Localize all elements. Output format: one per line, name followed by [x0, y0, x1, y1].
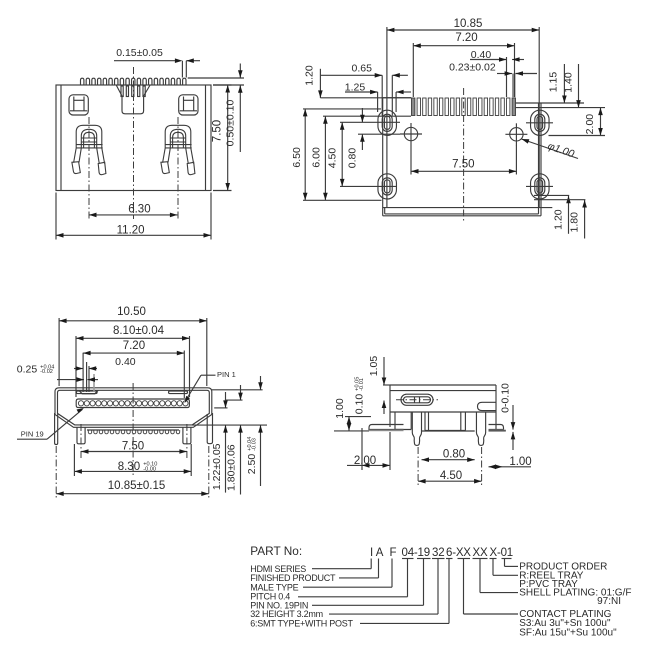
svg-text:1.15: 1.15: [548, 72, 560, 93]
svg-text:PIN 19: PIN 19: [21, 430, 44, 439]
svg-text:-0.02: -0.02: [40, 369, 53, 375]
svg-text:1.22±0.05: 1.22±0.05: [211, 443, 223, 490]
svg-text:7.50: 7.50: [122, 440, 144, 452]
svg-text:0.80: 0.80: [443, 449, 465, 461]
svg-text:10.85: 10.85: [454, 18, 483, 30]
svg-text:10.50: 10.50: [117, 306, 146, 318]
svg-text:7.20: 7.20: [455, 32, 477, 44]
svg-text:-0.01: -0.01: [359, 378, 365, 391]
svg-text:X-01: X-01: [490, 547, 514, 559]
svg-text:I: I: [370, 547, 373, 559]
svg-text:2.50: 2.50: [246, 454, 258, 475]
svg-text:SF:Au 15u"+Su 100u": SF:Au 15u"+Su 100u": [519, 627, 617, 638]
svg-text:0.50±0.10: 0.50±0.10: [225, 100, 237, 147]
svg-text:0-0.10: 0-0.10: [500, 383, 512, 413]
svg-text:2.00: 2.00: [584, 114, 596, 135]
svg-text:1.00: 1.00: [509, 456, 531, 468]
svg-text:0.65: 0.65: [351, 63, 372, 75]
svg-text:1.80: 1.80: [568, 212, 580, 233]
svg-text:0.15±0.05: 0.15±0.05: [116, 47, 163, 59]
svg-text:0.25: 0.25: [17, 364, 38, 376]
svg-text:4.50: 4.50: [327, 148, 339, 169]
svg-text:11.20: 11.20: [117, 224, 145, 236]
svg-text:XX: XX: [473, 547, 488, 559]
svg-text:0.23±0.02: 0.23±0.02: [449, 61, 496, 73]
svg-text:PIN 1: PIN 1: [217, 370, 236, 379]
svg-text:6-XX: 6-XX: [446, 547, 471, 559]
svg-text:1.40: 1.40: [563, 72, 575, 93]
svg-text:6.00: 6.00: [310, 147, 322, 168]
svg-text:A: A: [376, 547, 384, 559]
svg-text:10.85±0.15: 10.85±0.15: [108, 480, 165, 492]
svg-text:0.80: 0.80: [347, 148, 359, 169]
svg-text:7.20: 7.20: [123, 340, 145, 352]
svg-text:7.50: 7.50: [452, 159, 474, 171]
svg-text:7.50: 7.50: [212, 120, 224, 142]
svg-text:8.10±0.04: 8.10±0.04: [113, 325, 165, 337]
svg-text:32: 32: [432, 547, 444, 559]
svg-text:0.40: 0.40: [115, 356, 136, 368]
svg-text:0.10: 0.10: [354, 394, 366, 415]
svg-text:6.50: 6.50: [291, 147, 303, 168]
svg-text:97:NI: 97:NI: [597, 596, 621, 607]
svg-text:1.80±0.06: 1.80±0.06: [226, 444, 238, 491]
svg-text:1.05: 1.05: [368, 356, 380, 377]
svg-text:6.30: 6.30: [128, 203, 150, 215]
svg-text:4.50: 4.50: [440, 470, 462, 482]
svg-text:PART No:: PART No:: [250, 544, 302, 558]
svg-text:6:SMT TYPE+WITH POST: 6:SMT TYPE+WITH POST: [250, 619, 353, 629]
svg-text:1.20: 1.20: [304, 65, 316, 86]
svg-text:-0.03: -0.03: [252, 438, 258, 451]
svg-text:1.00: 1.00: [334, 398, 346, 419]
svg-text:04-19: 04-19: [402, 547, 430, 559]
svg-text:F: F: [390, 547, 397, 559]
svg-text:1.20: 1.20: [553, 209, 565, 230]
